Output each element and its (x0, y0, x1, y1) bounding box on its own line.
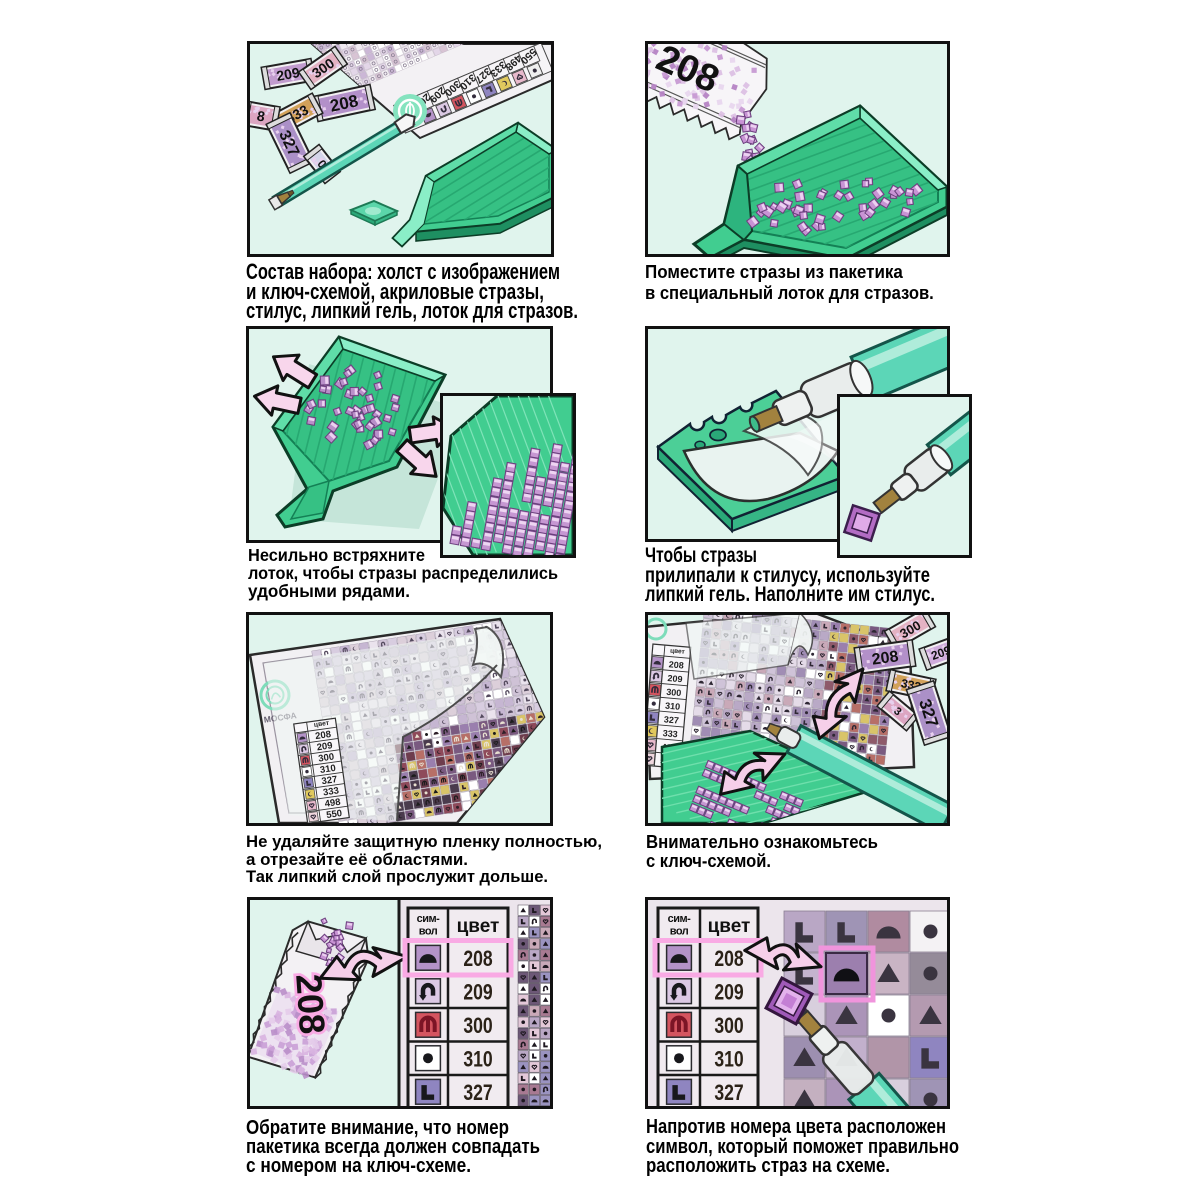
svg-text:сим-: сим- (417, 913, 441, 925)
svg-text:300: 300 (463, 1014, 492, 1038)
svg-text:550: 550 (326, 808, 343, 821)
svg-text:209: 209 (667, 673, 683, 684)
svg-text:цвет: цвет (708, 916, 751, 937)
svg-text:цвет: цвет (457, 916, 500, 937)
svg-text:208: 208 (288, 973, 333, 1036)
svg-text:310: 310 (463, 1048, 492, 1072)
svg-text:310: 310 (665, 701, 681, 712)
svg-text:208: 208 (668, 659, 684, 670)
svg-text:300: 300 (666, 687, 682, 698)
svg-text:327: 327 (714, 1081, 743, 1105)
svg-text:сим-: сим- (668, 913, 692, 925)
svg-text:327: 327 (463, 1081, 492, 1105)
svg-text:208: 208 (463, 947, 492, 971)
svg-text:327: 327 (663, 714, 679, 725)
svg-text:300: 300 (714, 1014, 743, 1038)
svg-text:вол: вол (419, 925, 438, 937)
svg-text:333: 333 (662, 728, 678, 739)
svg-text:вол: вол (670, 925, 689, 937)
svg-text:208: 208 (714, 947, 743, 971)
svg-text:209: 209 (463, 981, 492, 1005)
svg-text:310: 310 (714, 1048, 743, 1072)
svg-text:209: 209 (714, 981, 743, 1005)
svg-text:цвет: цвет (670, 647, 685, 655)
